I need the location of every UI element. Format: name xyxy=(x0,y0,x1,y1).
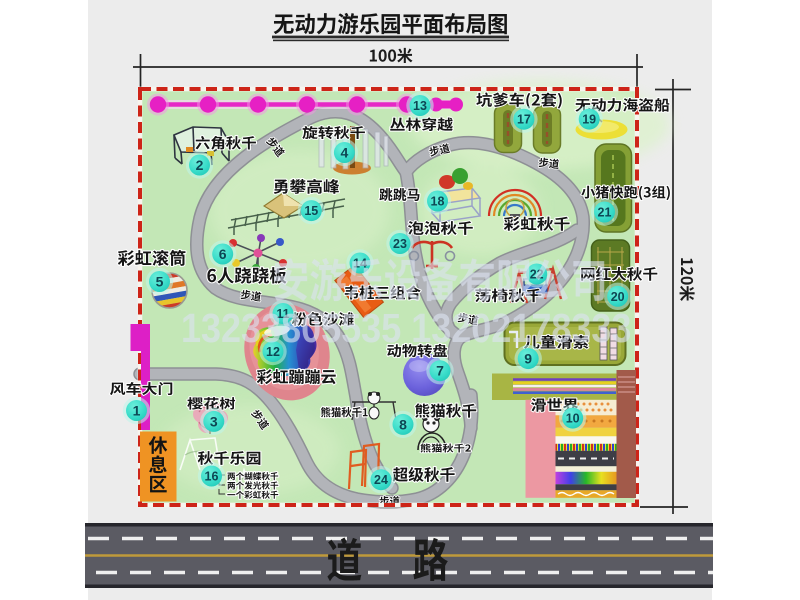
svg-text:20: 20 xyxy=(611,290,625,304)
svg-text:1: 1 xyxy=(133,403,141,419)
svg-text:24: 24 xyxy=(374,473,388,487)
svg-text:5: 5 xyxy=(156,274,164,290)
svg-text:15: 15 xyxy=(304,204,318,218)
svg-text:17: 17 xyxy=(517,113,531,127)
svg-text:8: 8 xyxy=(399,416,407,432)
svg-text:13: 13 xyxy=(413,99,427,113)
svg-text:19: 19 xyxy=(582,113,596,127)
svg-text:9: 9 xyxy=(524,351,532,367)
svg-text:3: 3 xyxy=(210,413,218,429)
svg-text:4: 4 xyxy=(341,145,349,161)
svg-text:10: 10 xyxy=(566,412,580,426)
svg-text:18: 18 xyxy=(431,195,445,209)
svg-text:6: 6 xyxy=(219,246,227,262)
svg-text:21: 21 xyxy=(598,206,612,220)
svg-text:13233805535 13202178333: 13233805535 13202178333 xyxy=(181,306,631,352)
svg-text:23: 23 xyxy=(393,237,407,251)
svg-text:16: 16 xyxy=(205,470,219,484)
svg-text:7: 7 xyxy=(436,363,444,379)
svg-text:2: 2 xyxy=(196,157,204,173)
